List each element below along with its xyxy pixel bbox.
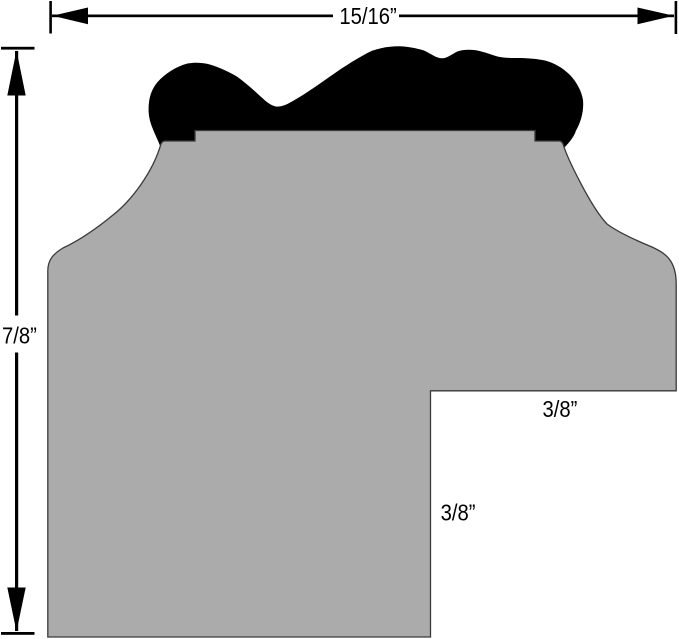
svg-text:3/8”: 3/8” <box>543 396 578 423</box>
svg-text:7/8”: 7/8” <box>2 322 37 349</box>
svg-text:3/8”: 3/8” <box>441 499 476 526</box>
svg-text:15/16”: 15/16” <box>339 3 396 30</box>
